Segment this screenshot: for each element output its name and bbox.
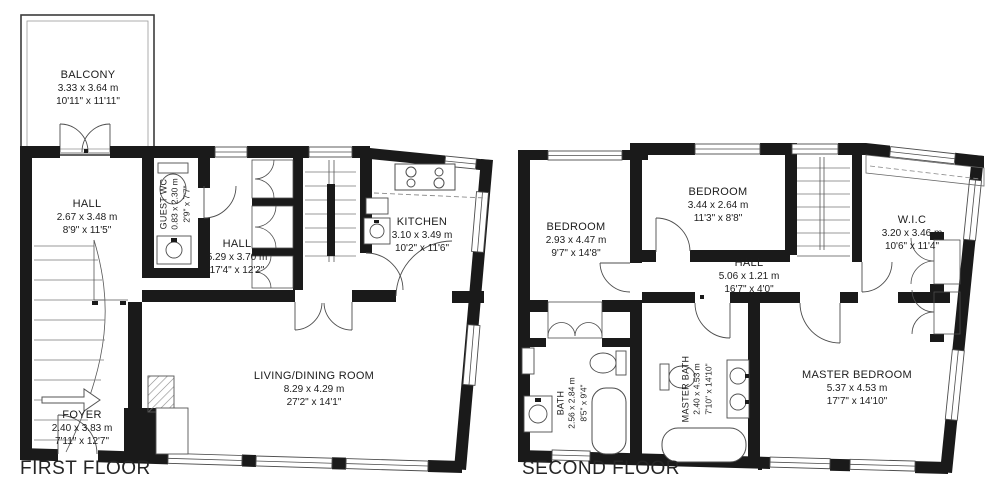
master-bath-tub: [662, 428, 746, 462]
guest-wc-door-arc: [204, 186, 236, 218]
guest-wc-sink: [157, 236, 191, 264]
room-dim-metric: 5.37 x 4.53 m: [802, 382, 912, 395]
hearth: [156, 408, 188, 454]
room-dim-metric: 3.44 x 2.64 m: [688, 199, 749, 212]
room-dim-imperial: 27'2" x 14'1": [254, 396, 374, 409]
room-label-hall-upper: HALL 5.06 x 1.21 m 16'7" x 4'0": [719, 256, 780, 296]
room-name: BALCONY: [56, 68, 120, 82]
room-name: W.I.C: [882, 213, 943, 227]
room-label-balcony: BALCONY 3.33 x 3.64 m 10'11" x 11'11": [56, 68, 120, 108]
room-dim-imperial: 7'10" x 14'10": [703, 356, 714, 423]
room-dim-metric: 5.29 x 3.70 m: [207, 251, 268, 264]
room-dim-imperial: 2'9" x 7'7": [181, 178, 192, 230]
upper-staircase: [797, 157, 850, 256]
room-dim-imperial: 8'9" x 11'5": [57, 224, 118, 237]
room-dim-metric: 2.67 x 3.48 m: [57, 211, 118, 224]
room-label-foyer: FOYER 2.40 x 3.83 m 7'11" x 12'7": [52, 408, 113, 448]
room-dim-imperial: 11'3" x 8'8": [688, 212, 749, 225]
room-name: MASTER BATH: [679, 356, 691, 423]
living-room-door-arcs: [295, 302, 352, 330]
bath-toilet: [590, 351, 626, 375]
room-dim-imperial: 10'2" x 11'6": [392, 242, 453, 255]
room-label-wic: W.I.C 3.20 x 3.46 m 10'6" x 11'4": [882, 213, 943, 253]
room-dim-imperial: 9'7" x 14'8": [546, 247, 607, 260]
room-label-master-bath: MASTER BATH 2.40 x 4.53 m 7'10" x 14'10": [679, 356, 714, 423]
fireplace: [148, 376, 174, 412]
room-label-guest-wc: GUEST WC 0.83 x 2.30 m 2'9" x 7'7": [157, 178, 192, 230]
room-name: GUEST WC: [157, 178, 169, 230]
room-dim-imperial: 16'7" x 4'0": [719, 283, 780, 296]
room-dim-imperial: 10'6" x 11'4": [882, 240, 943, 253]
room-name: HALL: [719, 256, 780, 270]
room-dim-imperial: 10'11" x 11'11": [56, 95, 120, 108]
kitchen-sink: [364, 198, 390, 244]
room-name: LIVING/DINING ROOM: [254, 369, 374, 383]
floorplan-page: BALCONY 3.33 x 3.64 m 10'11" x 11'11" HA…: [0, 0, 1000, 498]
room-name: MASTER BEDROOM: [802, 368, 912, 382]
master-bath-vanity: [727, 360, 749, 418]
bedroom-closet-doors: [548, 302, 602, 338]
kitchen-counter-line: [374, 193, 486, 198]
room-dim-imperial: 17'4" x 12'2": [207, 264, 268, 277]
room-dim-metric: 0.83 x 2.30 m: [170, 178, 181, 230]
room-name: BEDROOM: [688, 185, 749, 199]
room-dim-metric: 5.06 x 1.21 m: [719, 270, 780, 283]
bath-tub: [592, 388, 626, 454]
room-label-master-bedroom: MASTER BEDROOM 5.37 x 4.53 m 17'7" x 14'…: [802, 368, 912, 408]
room-label-living-dining: LIVING/DINING ROOM 8.29 x 4.29 m 27'2" x…: [254, 369, 374, 409]
room-dim-metric: 2.56 x 2.84 m: [567, 377, 578, 429]
room-dim-metric: 3.33 x 3.64 m: [56, 82, 120, 95]
room-dim-imperial: 17'7" x 14'10": [802, 395, 912, 408]
room-name: HALL: [207, 237, 268, 251]
room-dim-metric: 2.40 x 3.83 m: [52, 422, 113, 435]
room-label-bath: BATH 2.56 x 2.84 m 8'5" x 9'4": [554, 377, 589, 429]
room-dim-metric: 2.93 x 4.47 m: [546, 234, 607, 247]
room-dim-imperial: 7'11" x 12'7": [52, 435, 113, 448]
room-dim-metric: 2.40 x 4.53 m: [692, 356, 703, 423]
room-label-hall-1: HALL 2.67 x 3.48 m 8'9" x 11'5": [57, 197, 118, 237]
stove: [395, 164, 455, 190]
room-name: HALL: [57, 197, 118, 211]
room-name: KITCHEN: [392, 215, 453, 229]
room-name: FOYER: [52, 408, 113, 422]
room-dim-imperial: 8'5" x 9'4": [578, 377, 589, 429]
bath-cabinet: [522, 348, 534, 374]
room-name: BATH: [554, 377, 566, 429]
hall-staircase: [305, 160, 356, 262]
first-floor-title: FIRST FLOOR: [20, 458, 151, 480]
room-label-bedroom-center: BEDROOM 3.44 x 2.64 m 11'3" x 8'8": [688, 185, 749, 225]
floorplan-drawing: [0, 0, 1000, 498]
bath-sink: [524, 396, 552, 432]
room-label-hall-2: HALL 5.29 x 3.70 m 17'4" x 12'2": [207, 237, 268, 277]
room-dim-metric: 3.10 x 3.49 m: [392, 229, 453, 242]
room-dim-metric: 8.29 x 4.29 m: [254, 383, 374, 396]
room-name: BEDROOM: [546, 220, 607, 234]
second-floor-title: SECOND FLOOR: [522, 458, 680, 480]
room-dim-metric: 3.20 x 3.46 m: [882, 227, 943, 240]
room-label-bedroom-left: BEDROOM 2.93 x 4.47 m 9'7" x 14'8": [546, 220, 607, 260]
room-label-kitchen: KITCHEN 3.10 x 3.49 m 10'2" x 11'6": [392, 215, 453, 255]
